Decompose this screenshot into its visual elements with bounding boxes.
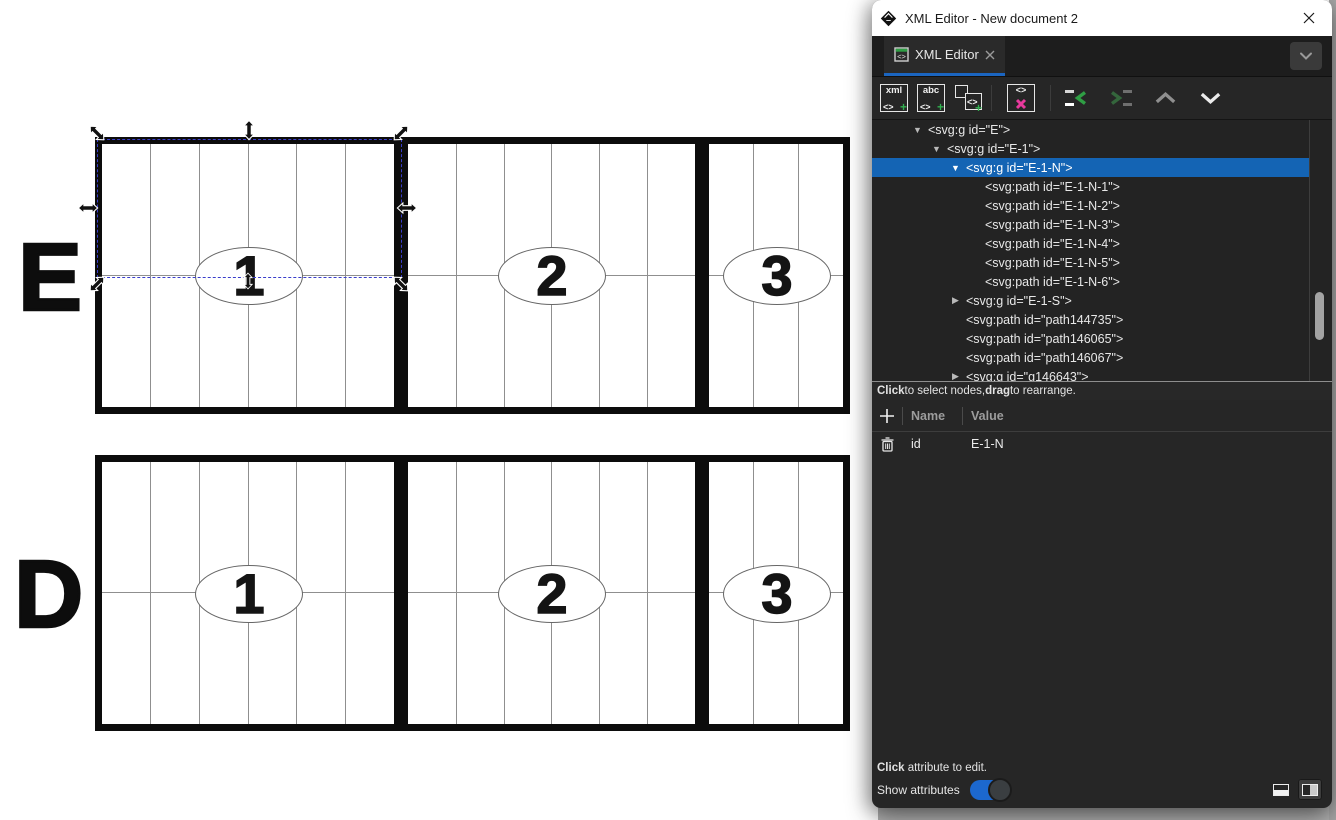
- tree-node[interactable]: <svg:path id="E-1-N-3">: [872, 215, 1310, 234]
- grid-line: [345, 462, 346, 724]
- delete-attribute-button[interactable]: [872, 437, 902, 452]
- duplicate-node-button[interactable]: <> +: [954, 84, 982, 112]
- tab-xml-editor[interactable]: <> XML Editor: [884, 36, 1005, 76]
- tab-list-dropdown-button[interactable]: [1290, 42, 1322, 70]
- dialog-tabbar: <> XML Editor: [872, 36, 1332, 77]
- tree-node[interactable]: <svg:path id="path146067">: [872, 348, 1310, 367]
- value-column-header: Value: [963, 409, 1332, 423]
- section-number-ellipse[interactable]: 1: [195, 565, 303, 623]
- layout-horizontal-button[interactable]: [1269, 779, 1293, 800]
- row-label-e: E: [18, 230, 82, 326]
- section-number: 3: [761, 566, 792, 622]
- toolbar-separator: [991, 85, 992, 111]
- section-number-ellipse[interactable]: 2: [498, 565, 606, 623]
- indent-icon: [1108, 85, 1134, 111]
- toolbar-separator: [1050, 85, 1051, 111]
- xml-editor-tab-icon: <>: [894, 47, 909, 62]
- angle-glyph: <>: [920, 102, 931, 112]
- expander-open-icon[interactable]: ▼: [910, 125, 925, 135]
- scrollbar-track-border: [1309, 120, 1310, 381]
- section-number: 2: [536, 248, 567, 304]
- tree-node[interactable]: ▶<svg:g id="E-1-S">: [872, 291, 1310, 310]
- show-attributes-label: Show attributes: [877, 783, 960, 797]
- layout-vertical-button[interactable]: [1298, 779, 1322, 800]
- plus-glyph: +: [975, 101, 982, 115]
- expander-open-icon[interactable]: ▼: [948, 163, 963, 173]
- tree-node-selected[interactable]: ▼<svg:g id="E-1-N">: [872, 158, 1310, 177]
- delete-node-button[interactable]: <>: [1007, 84, 1035, 112]
- section-number: 3: [761, 248, 792, 304]
- horizontal-split-icon: [1273, 784, 1289, 796]
- name-column-header: Name: [903, 409, 962, 423]
- tree-node[interactable]: ▼<svg:g id="E">: [872, 120, 1310, 139]
- delete-x-icon: [1015, 98, 1027, 110]
- section-number-ellipse[interactable]: 2: [498, 247, 606, 305]
- dialog-title: XML Editor - New document 2: [905, 11, 1078, 26]
- angle-glyph: <>: [883, 102, 894, 112]
- plus-glyph: +: [937, 100, 944, 114]
- xml-node-tree[interactable]: ▼<svg:g id="E"> ▼<svg:g id="E-1"> ▼<svg:…: [872, 120, 1332, 382]
- selection-handle-w[interactable]: [77, 197, 99, 219]
- toggle-knob: [988, 778, 1012, 802]
- hint-bold: Click: [877, 385, 905, 397]
- tree-node[interactable]: <svg:path id="E-1-N-2">: [872, 196, 1310, 215]
- tree-node[interactable]: <svg:path id="path146065">: [872, 329, 1310, 348]
- section-number-ellipse[interactable]: 3: [723, 565, 831, 623]
- vertical-split-icon: [1302, 784, 1318, 796]
- new-text-node-button[interactable]: abc <> +: [917, 84, 945, 112]
- selection-handle-s[interactable]: [239, 272, 257, 290]
- hint-text: to select nodes,: [905, 385, 986, 397]
- tree-node[interactable]: ▼<svg:g id="E-1">: [872, 139, 1310, 158]
- angle-glyph: <>: [1008, 85, 1034, 95]
- unindent-icon: [1063, 85, 1089, 111]
- plus-icon: [879, 408, 895, 424]
- tree-node[interactable]: <svg:path id="E-1-N-5">: [872, 253, 1310, 272]
- canvas-section-e2[interactable]: 2: [401, 137, 702, 414]
- canvas-section-d1[interactable]: 1: [95, 455, 401, 731]
- canvas-section-d3[interactable]: 3: [702, 455, 850, 731]
- tree-node[interactable]: <svg:path id="E-1-N-6">: [872, 272, 1310, 291]
- xml-editor-dialog: XML Editor - New document 2 <> XML Edito…: [872, 0, 1332, 808]
- selection-handle-n[interactable]: [238, 119, 260, 141]
- attribute-table-header: Name Value: [872, 400, 1332, 432]
- hint-bold: drag: [985, 385, 1010, 397]
- plus-glyph: +: [900, 100, 907, 114]
- tab-close-icon[interactable]: [985, 50, 995, 60]
- dialog-titlebar[interactable]: XML Editor - New document 2: [872, 0, 1332, 36]
- hint-bold: Click: [877, 762, 905, 774]
- attribute-table-empty-area: [872, 456, 1332, 760]
- attribute-row[interactable]: id E-1-N: [872, 432, 1332, 456]
- tree-node[interactable]: <svg:path id="E-1-N-4">: [872, 234, 1310, 253]
- selection-handle-e[interactable]: [396, 197, 418, 219]
- section-number: 1: [233, 566, 264, 622]
- move-node-up-button: [1152, 85, 1179, 112]
- chevron-up-icon: [1152, 86, 1179, 110]
- attribute-name[interactable]: id: [902, 437, 962, 451]
- show-attributes-toggle[interactable]: [970, 780, 1010, 800]
- add-attribute-button[interactable]: [872, 408, 902, 424]
- xml-toolbar: xml <> + abc <> + <> + <>: [872, 77, 1332, 120]
- tree-scrollbar-thumb[interactable]: [1315, 292, 1324, 340]
- tab-label: XML Editor: [915, 47, 979, 62]
- move-node-down-button[interactable]: [1197, 85, 1224, 112]
- hint-text: to rearrange.: [1010, 385, 1076, 397]
- trash-icon: [881, 437, 894, 452]
- chevron-down-icon: [1298, 49, 1314, 63]
- tree-node[interactable]: <svg:path id="E-1-N-1">: [872, 177, 1310, 196]
- grid-line: [456, 462, 457, 724]
- attribute-hint-text: Click attribute to edit.: [877, 762, 1322, 774]
- unindent-node-button[interactable]: [1062, 85, 1089, 112]
- expander-closed-icon[interactable]: ▶: [948, 295, 963, 306]
- xml-glyph: xml: [881, 85, 907, 96]
- tree-node[interactable]: ▶<svg:g id="g146643">: [872, 367, 1310, 382]
- grid-line: [150, 462, 151, 724]
- tree-hint-text: Click to select nodes, drag to rearrange…: [872, 382, 1332, 400]
- attribute-value[interactable]: E-1-N: [962, 437, 1332, 451]
- close-icon[interactable]: [1298, 7, 1320, 29]
- indent-node-button: [1107, 85, 1134, 112]
- expander-closed-icon[interactable]: ▶: [948, 371, 963, 382]
- hint-text: attribute to edit.: [905, 762, 987, 774]
- expander-open-icon[interactable]: ▼: [929, 144, 944, 154]
- canvas-section-d2[interactable]: 2: [401, 455, 702, 731]
- canvas-section-e3[interactable]: 3: [702, 137, 850, 414]
- new-element-node-button[interactable]: xml <> +: [880, 84, 908, 112]
- section-number: 2: [536, 566, 567, 622]
- row-label-d: D: [14, 547, 83, 643]
- tree-node[interactable]: <svg:path id="path144735">: [872, 310, 1310, 329]
- chevron-down-icon: [1197, 86, 1224, 110]
- abc-glyph: abc: [918, 85, 944, 96]
- svg-text:<>: <>: [897, 52, 906, 61]
- dialog-footer: Click attribute to edit. Show attributes: [872, 760, 1332, 808]
- selection-bounding-box: [97, 139, 402, 278]
- inkscape-logo-icon: [880, 10, 897, 27]
- section-number-ellipse[interactable]: 3: [723, 247, 831, 305]
- grid-line: [647, 462, 648, 724]
